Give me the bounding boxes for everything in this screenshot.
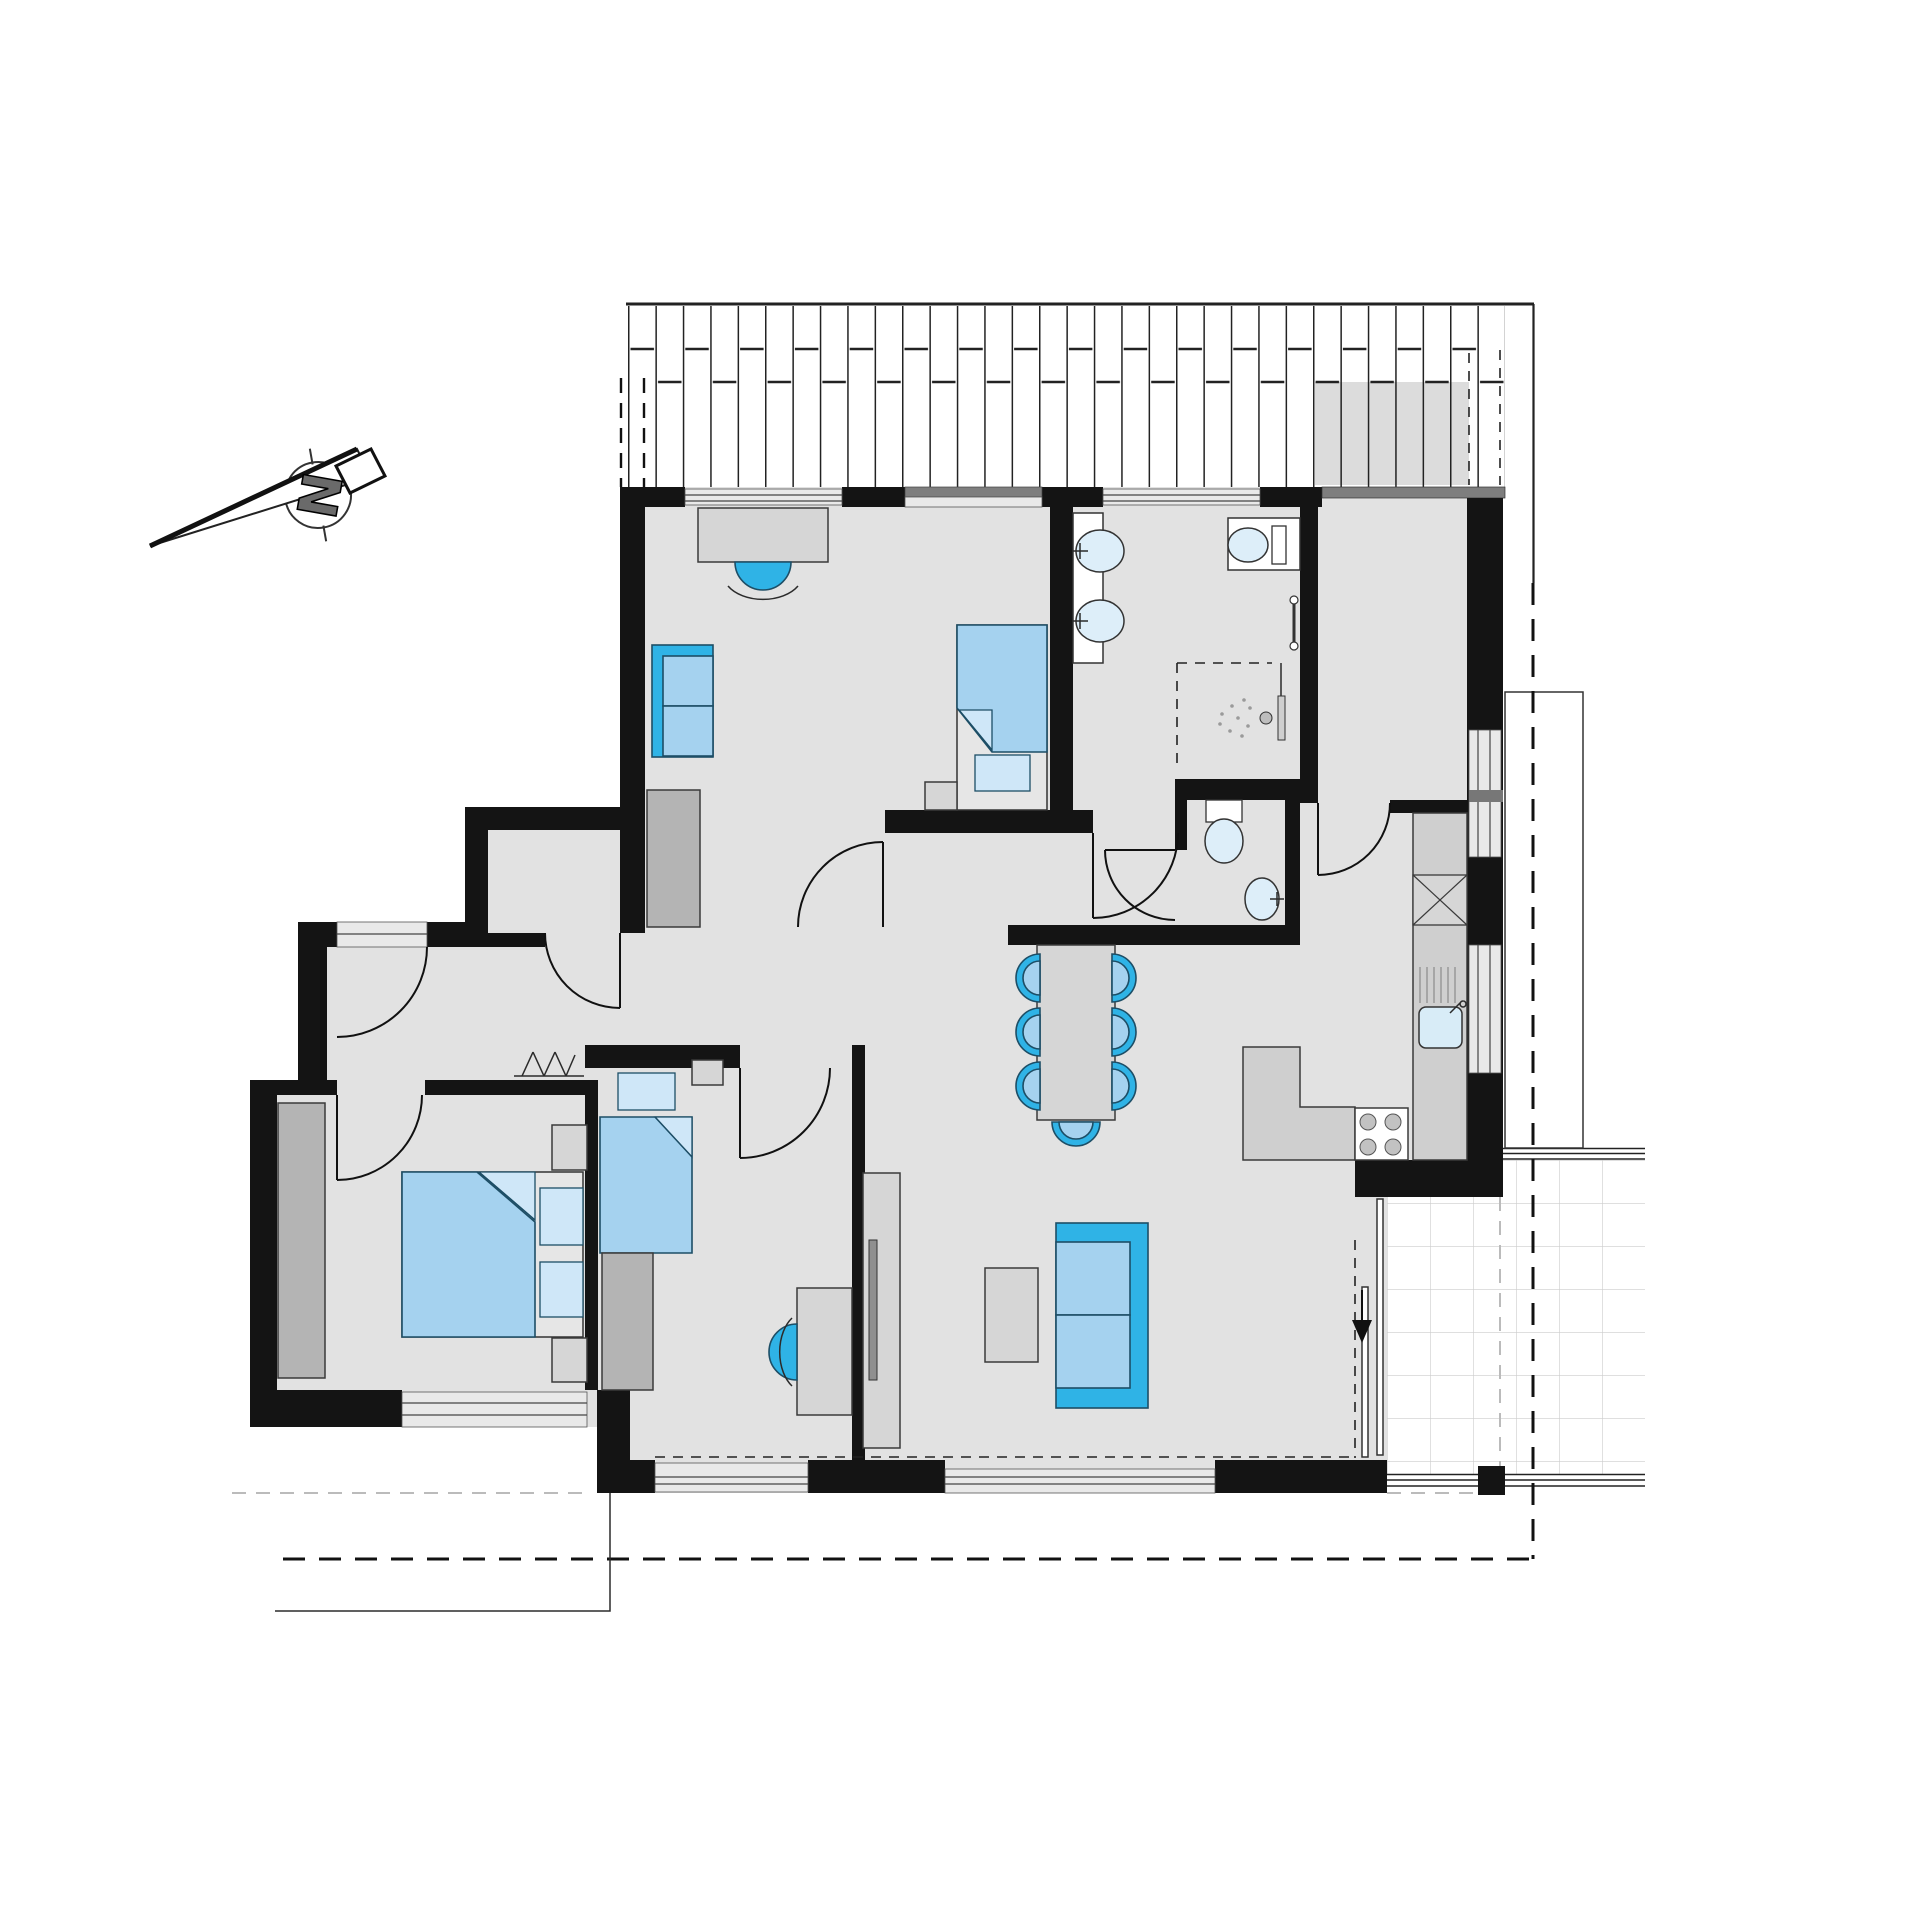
kitchen-sink [1419, 1007, 1462, 1048]
cooktop [1355, 1108, 1408, 1160]
terrace-railing-bottom [1387, 1475, 1645, 1487]
window-east-lower [1469, 945, 1501, 1073]
floor-plan-stage: N [0, 0, 1920, 1920]
compass-letter: N [284, 467, 354, 522]
pillow [540, 1262, 583, 1317]
terrace-railing-top [1503, 1149, 1645, 1160]
window-study-north [685, 489, 842, 505]
window-bedroom-middle-south [655, 1463, 808, 1492]
sofa [1056, 1223, 1148, 1408]
desk [698, 508, 828, 562]
shower-panel [1278, 696, 1285, 740]
nightstand [552, 1338, 587, 1382]
dining-table [1037, 945, 1115, 1120]
single-bed-study [957, 625, 1047, 810]
balcony-above-outline [1505, 692, 1583, 1148]
toilet-bath [1228, 518, 1300, 570]
toilet-wc [1205, 800, 1243, 863]
window-east-upper [1469, 730, 1503, 857]
desk-middle [797, 1288, 852, 1415]
wardrobe-left [278, 1103, 325, 1378]
fridge-box [1413, 875, 1467, 925]
nightstand [692, 1060, 723, 1085]
sliding-door-panel-outer [1377, 1199, 1383, 1455]
tv-board [863, 1173, 900, 1448]
terrace-grid [1387, 1160, 1645, 1475]
entry-door-band [337, 922, 427, 947]
window-hall-north [1103, 489, 1260, 505]
nightstand [552, 1125, 587, 1170]
wardrobe-study [647, 790, 700, 927]
shower-head [1260, 712, 1272, 724]
railing-post [1478, 1466, 1505, 1495]
sofa-small [652, 645, 713, 757]
double-bed [402, 1172, 583, 1337]
window-bedroom-left-south [402, 1392, 587, 1427]
compass: N [150, 443, 385, 547]
single-bed-middle [600, 1117, 692, 1253]
tv [869, 1240, 877, 1380]
window-bath-north [905, 487, 1042, 507]
pillow [618, 1073, 675, 1110]
parapet-band [1322, 487, 1505, 498]
pillow [975, 755, 1030, 791]
floor-plan-svg: N [0, 0, 1920, 1920]
pillow [540, 1188, 583, 1245]
nightstand [925, 782, 957, 810]
wardrobe-middle [602, 1253, 653, 1390]
wall-junction-mark [1469, 790, 1503, 802]
pergola-planks [628, 306, 1505, 487]
property-line-l [275, 1493, 610, 1611]
coffee-table [985, 1268, 1038, 1362]
terrace [1387, 1149, 1645, 1496]
kitchen-counter [1413, 813, 1467, 1160]
window-living-south [945, 1469, 1215, 1493]
